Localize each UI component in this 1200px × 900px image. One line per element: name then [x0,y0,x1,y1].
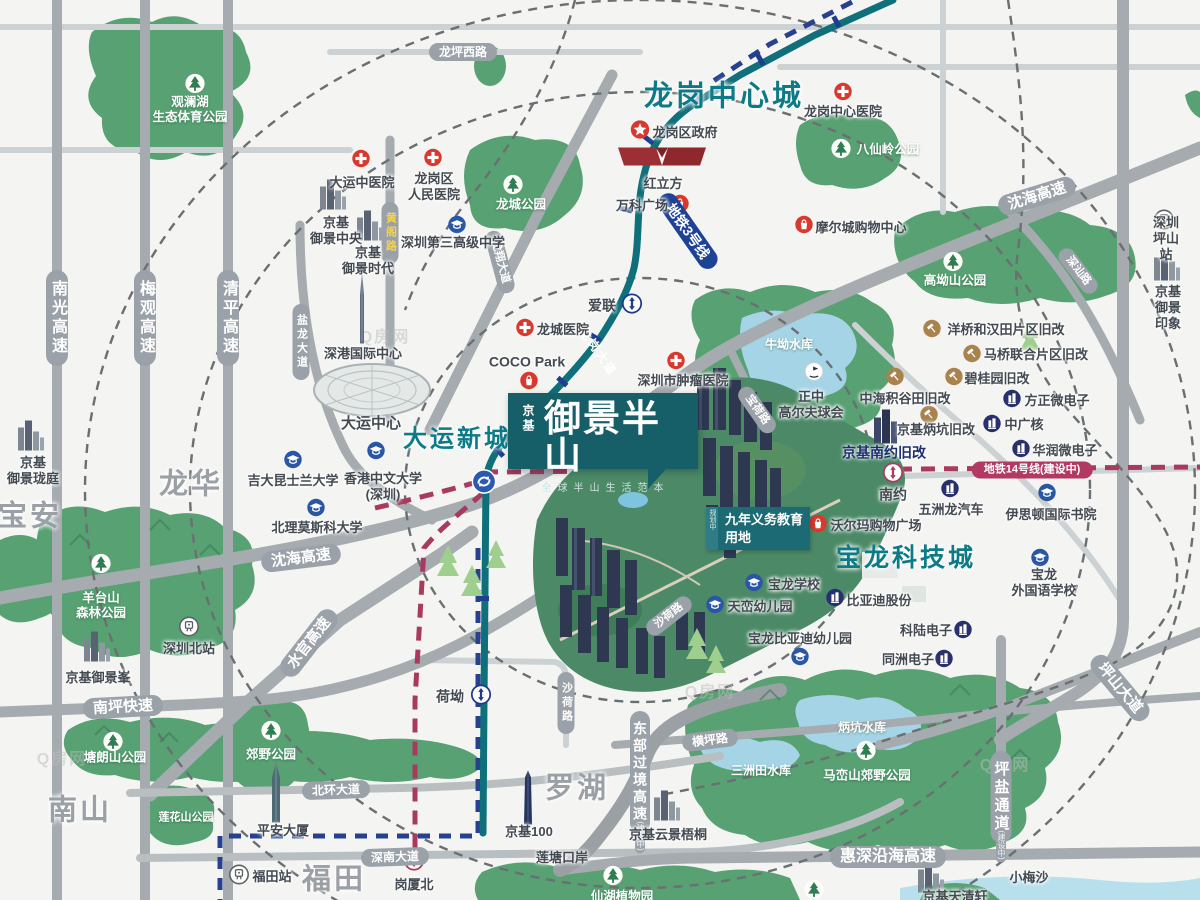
poi-honglifang: 红立方 [643,176,682,192]
poi-pingshan-station: 深圳坪山站 [1149,215,1183,263]
poi-vanke-plaza: 万科广场 [616,198,668,214]
poi-lg-government: 龙岗区政府 [652,125,717,141]
poi-longcheng-park: 龙城公园 [496,197,546,212]
logo-pointer [648,469,666,489]
poi-moercheng-mall: 摩尔城购物中心 [815,220,906,236]
poi-baxianling-park: 八仙岭公园 [857,142,920,157]
poi-kelu-electronics: 科陆电子 [900,623,952,639]
poi-gaoaoshan-park: 高坳山公园 [924,273,987,288]
poi-lianhuashan-park: 莲花山公园 [159,811,214,824]
area-longhua: 龙华 [159,467,223,502]
pingan-tower-icon [269,763,283,828]
yangqiao-redev-icon [923,319,942,343]
poi-dayun-center: 大运中心 [341,415,401,433]
road-dongbu-expwy: 东部过境高速 [630,711,650,833]
poi-yangqiao-redev: 洋桥和汉田片区旧改 [947,322,1064,338]
poi-maqiao-redev: 马桥联合片区旧改 [984,347,1088,363]
poi-ailian-station: 爱联 [588,297,616,314]
poi-cuhk-shenzhen: 香港中文大学 (深圳) [344,471,422,503]
metro-line14-pill: 地铁14号线(建设中) [972,462,1093,479]
poi-kk-yujing-longting: 京基 御景珑庭 [7,455,59,487]
kk100-tower-icon [520,771,536,830]
poi-cancer-hospital: 深圳市肿瘤医院 [637,373,728,389]
poi-lg-central-hospital: 龙岗中心医院 [804,104,882,120]
road-beihuan: 北环大道 [302,780,371,800]
poi-walmart-plaza: 沃尔玛购物广场 [830,518,921,534]
tianluan-kindergarten-icon [706,595,725,619]
area-luohu: 罗湖 [545,771,609,806]
maluanshan-park-icon [855,740,877,767]
byd-icon [826,588,845,612]
nanyue-station-icon [883,462,904,488]
road-shennan: 深南大道 [361,847,430,867]
cgn-icon [983,414,1002,438]
yangtaishan-park-icon [90,553,112,580]
poi-liantang-port: 莲塘口岸 [536,850,588,866]
lg-peoples-hospital-icon [424,148,443,172]
poi-gangxiabei-station: 岗厦北 [394,877,433,893]
eastern-intl-college-icon [1038,483,1057,507]
road-meiguan: 梅观高速 [134,270,156,366]
poi-xiaomeisha: 小梅沙 [1009,870,1048,886]
poi-tanglangshan-park: 塘朗山公园 [84,750,147,765]
project-logo: 京基 御景半山 全球半山生活范本 [508,393,698,469]
baxianling-park-icon [830,138,852,165]
crmicro-icon [1012,439,1031,463]
poi-longcheng-hospital: 龙城医院 [537,322,589,338]
road-longping-west: 龙坪西路 [429,43,497,61]
heao-station-icon [471,684,492,710]
kk-nanyue-towers-icon [871,408,899,449]
futian-station-icon [229,864,250,890]
poi-sanzhoutian-reservoir: 三洲田水库 [731,764,791,779]
area-nanshan: 南山 [48,793,112,828]
cancer-hospital-icon [667,351,686,375]
watermark: Q房网 [685,678,735,702]
poi-kk-yujing-impression: 京基 御景印象 [1152,284,1184,332]
poi-nanyue-station: 南约 [879,486,907,503]
area-dayun-newtown: 大运新城 [403,424,511,453]
poi-futian-station: 福田站 [252,869,291,885]
poi-heao-station: 荷坳 [436,688,464,705]
dayun-interchange-icon [471,469,497,500]
poi-dayun-tcm-hospital: 大运中医院 [329,175,394,191]
poi-kk-nanyue-redev: 京基南约旧改 [842,444,926,461]
coco-park-icon [520,371,539,395]
poi-kk-yunjing-wutong: 京基云景梧桐 [629,827,707,843]
logo-brand: 京基 [520,404,537,434]
road-shahe-diagonal: 沙荷路 [643,593,695,639]
poi-biguiyuan-redev: 碧桂园旧改 [964,371,1029,387]
poi-yangtaishan-park: 羊台山 森林公园 [76,591,126,622]
road-nanguang: 南光高速 [46,270,68,366]
poi-jiaoye-park: 郊野公园 [246,747,296,762]
lg-government-icon [630,120,650,145]
watermark: Q房网 [37,745,87,769]
moscow-univ-icon [307,498,326,522]
poi-baolong-foreign-school: 宝龙 外国语学校 [1011,567,1076,599]
kk-yunjing-wutong-icon [651,789,681,828]
poi-founder-micro: 方正微电子 [1024,393,1089,409]
road-pingyan-status: (建设中) [996,827,1006,862]
road-shenhai-ne: 沈海高速 [996,174,1079,217]
ailian-station-icon [622,293,643,319]
dayun-tcm-hospital-icon [352,149,371,173]
road-hengping: 横坪路 [681,728,739,753]
poi-tianluan-kindergarten: 天峦幼儿园 [727,599,792,615]
road-baohe: 宝荷路 [735,383,779,436]
area-futian: 福田 [302,862,366,897]
lg-central-hospital-icon [834,82,853,106]
poi-eastern-intl-college: 伊思顿国际书院 [1005,507,1096,523]
shengang-intl-spire-icon [356,272,368,349]
road-pingshan-ave: 坪山大道 [1086,651,1154,726]
zhengzhong-golf-icon [804,362,824,387]
poi-cgn: 中广核 [1004,417,1043,433]
poi-pingan-tower: 平安大厦 [257,823,309,839]
location-map: 京基 御景半山 全球半山生活范本 规划中 九年义务教育 用地 龙岗中心城大运新城… [0,0,1200,900]
poi-kk-yujing-central: 京基 御景中央 [310,215,362,247]
kk-yujing-feng-icon [81,630,111,669]
road-qingping: 清平高速 [217,270,239,366]
poi-kk-yujing-feng: 京基御景峯 [65,670,130,686]
poi-kk-yujing-era: 京基 御景时代 [342,245,394,277]
edu-land-text: 九年义务教育 用地 [718,507,810,550]
poi-no3-highschool: 深圳第三高级中学 [401,235,505,251]
moercheng-mall-icon [795,215,814,239]
shenzhenbei-station-icon [179,616,200,642]
road-huishen-coastal: 惠深沿海高速 [830,846,946,868]
poi-wuzhoulong-auto: 五洲龙汽车 [918,502,983,518]
poi-lg-peoples-hospital: 龙岗区 人民医院 [408,171,460,203]
founder-micro-icon [1003,389,1022,413]
poi-kk-tianqingxuan: 京基天清轩 [922,889,987,900]
poi-zhonghai-redev: 中海积谷田旧改 [859,391,950,407]
biguiyuan-redev-icon [945,367,964,391]
logo-subtitle: 全球半山生活范本 [508,479,698,494]
area-baolong-tech: 宝龙科技城 [836,543,976,574]
road-shenshan: 深汕路 [1055,245,1101,297]
poi-crmicro: 华润微电子 [1032,443,1097,459]
area-baoan: 宝安 [0,499,62,534]
tongzhou-electronics-icon [935,649,954,673]
poi-xianhu-garden: 仙湖植物园 [591,889,654,900]
zhonghai-redev-icon [886,367,905,391]
poi-shenzhenbei-station: 深圳北站 [163,641,215,657]
poi-byd: 比亚迪股份 [846,593,911,609]
poi-guanlanhu-park: 观澜湖 生态体育公园 [152,95,227,126]
poi-baolong-school: 宝龙学校 [768,577,820,593]
poi-moscow-univ: 北理莫斯科大学 [271,520,362,536]
baolong-school-icon [745,573,764,597]
cuhk-shenzhen-icon [367,441,386,465]
road-shuiguan: 水官高速 [276,605,342,681]
edu-land-tag: 规划中 九年义务教育 用地 [706,507,810,550]
jiaoye-park-icon [260,720,282,747]
wuzhoulong-auto-icon [941,479,960,503]
longcheng-hospital-icon [516,318,535,342]
poi-coco-park: COCO Park [489,353,565,370]
poi-jida-queensland-univ: 吉大昆士兰大学 [247,473,338,489]
poi-bingkeng-reservoir: 炳坑水库 [838,721,886,736]
kelu-electronics-icon [954,620,973,644]
poi-kk100: 京基100 [505,824,553,840]
walmart-plaza-icon [809,514,828,538]
poi-niuao-reservoir: 牛坳水库 [765,338,813,353]
poi-kk-binkeng-redev: 京基炳坑旧改 [897,422,975,438]
xianhu-park-icon [602,865,624,892]
edu-land-status: 规划中 [706,507,718,550]
baolong-byd-kindergarten-icon [791,647,810,671]
kk-yujing-longting-icon [15,419,45,458]
road-nanping: 南坪快速 [82,694,163,719]
road-shenhai-w: 沈海高速 [260,543,342,574]
road-yanlong: 盐龙大道 [293,304,310,380]
poi-maluanshan-park: 马峦山郊野公园 [823,768,911,783]
poi-tongzhou-electronics: 同洲电子 [882,652,934,668]
poi-zhengzhong-golf: 正中 高尔夫球会 [778,389,843,421]
area-longgang-center: 龙岗中心城 [644,79,804,114]
xianhu-park-2-icon [803,879,825,900]
road-shahe-vertical: 沙荷路 [558,672,575,734]
poi-shengang-intl-center: 深港国际中心 [324,346,402,362]
logo-title: 御景半山 [544,400,692,474]
poi-baolong-byd-kindergarten: 宝龙比亚迪幼儿园 [748,631,852,647]
maqiao-redev-icon [963,344,982,368]
jida-queensland-univ-icon [284,450,303,474]
honglifang-cube-icon [616,144,708,175]
